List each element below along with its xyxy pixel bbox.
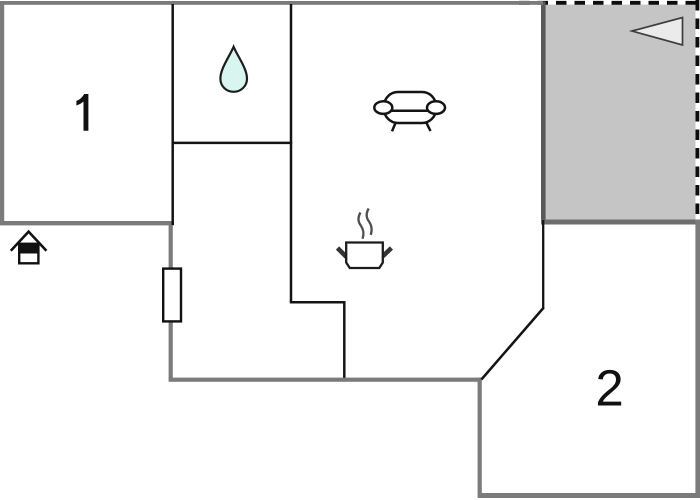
svg-text:2: 2 — [595, 360, 623, 417]
